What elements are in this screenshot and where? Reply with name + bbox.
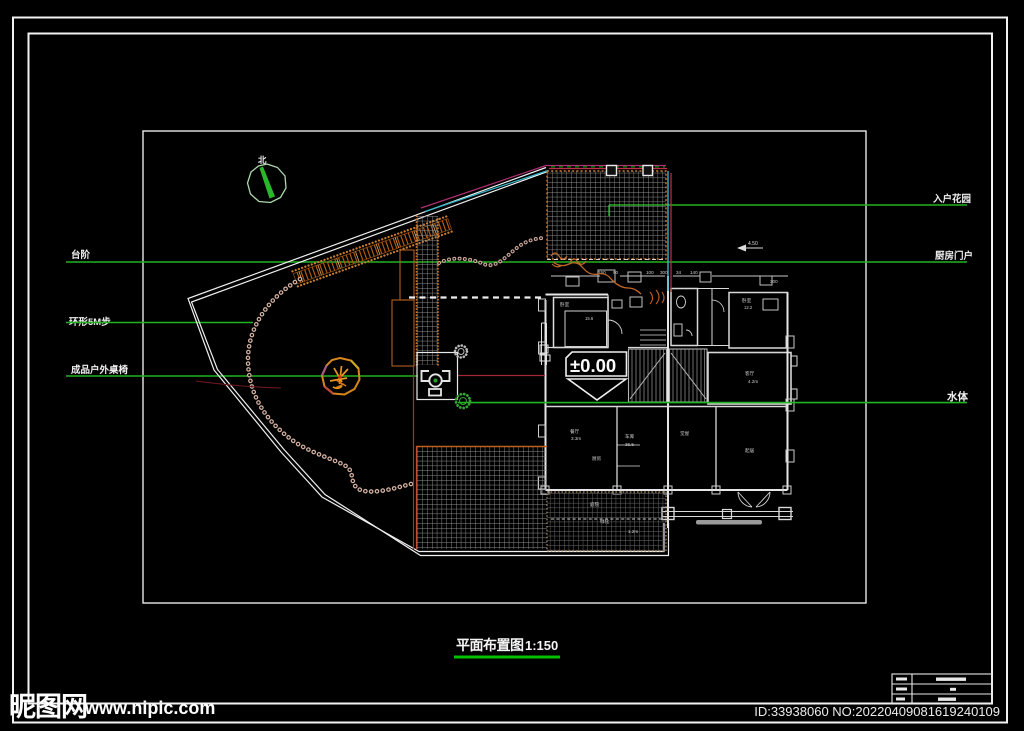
svg-text:3.3m: 3.3m [571,436,581,441]
svg-text:±0.00: ±0.00 [570,355,616,376]
svg-text:车库: 车库 [625,433,635,440]
svg-text:卧室: 卧室 [560,301,570,308]
svg-text:300: 300 [770,279,778,284]
svg-text:厨房门户: 厨房门户 [935,250,973,262]
svg-text:餐厅: 餐厅 [570,428,580,435]
svg-text:台阶: 台阶 [71,249,91,261]
svg-text:平面布置图: 平面布置图 [456,637,524,653]
svg-text:成品户外桌椅: 成品户外桌椅 [71,364,129,376]
svg-text:100: 100 [646,270,654,275]
svg-text:入户花园: 入户花园 [932,193,971,205]
svg-text:堂屋: 堂屋 [680,430,690,437]
svg-text:ID:33938060 NO:202204090816192: ID:33938060 NO:20220409081619240109 [754,704,1000,719]
svg-text:客厅: 客厅 [745,370,755,377]
svg-text:厨房: 厨房 [592,455,602,462]
svg-text:庭院: 庭院 [590,501,600,508]
svg-text:1.2m: 1.2m [628,529,638,534]
svg-text:34: 34 [676,270,682,275]
svg-text:北: 北 [258,155,267,165]
svg-text:4.50: 4.50 [748,241,758,247]
svg-text:36.5: 36.5 [625,442,634,447]
svg-text:昵图网: 昵图网 [9,692,87,722]
svg-text:水体: 水体 [946,390,968,403]
svg-text:140: 140 [690,270,698,275]
svg-text:www.nipic.com: www.nipic.com [84,698,215,718]
svg-text:绿化: 绿化 [600,518,610,525]
svg-text:12.2: 12.2 [744,305,753,310]
svg-text:300: 300 [660,270,668,275]
svg-text:15.6: 15.6 [585,316,594,321]
svg-text:90: 90 [613,270,619,275]
svg-text:1:150: 1:150 [525,638,558,653]
svg-text:4.2m: 4.2m [748,379,758,384]
svg-text:卧室: 卧室 [742,297,752,304]
